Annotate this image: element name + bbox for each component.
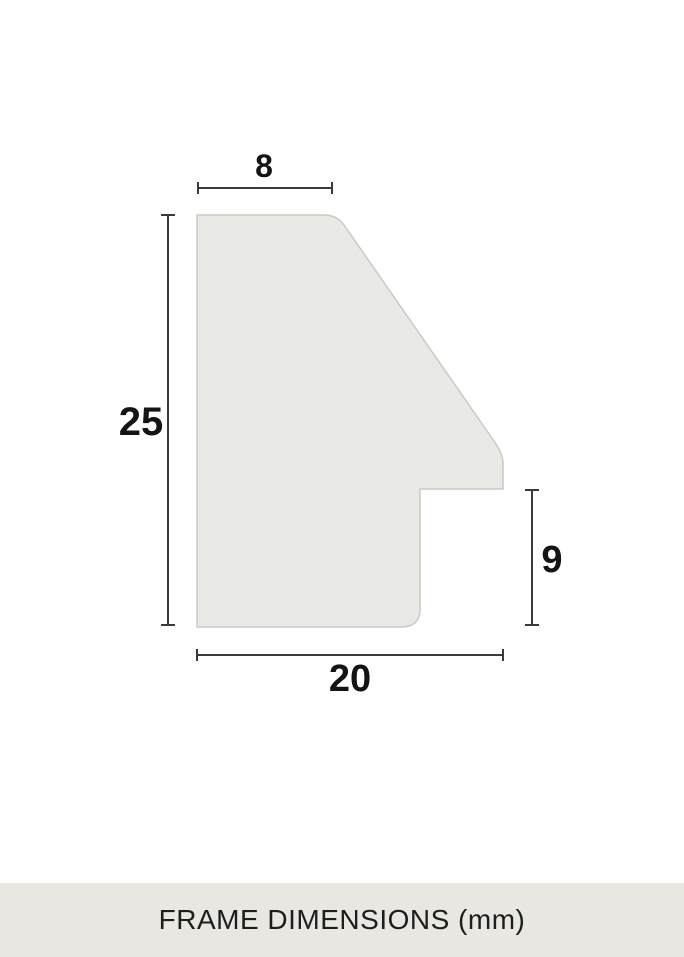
dimension-right-height: 9 [525,490,563,625]
frame-profile-shape [197,215,503,627]
dimension-bottom-width: 20 [197,649,503,700]
footer-band: FRAME DIMENSIONS (mm) [0,883,684,957]
frame-dimension-diagram: 8 25 9 20 [0,0,684,883]
dimension-label-right-height: 9 [541,539,562,581]
dimension-top-width: 8 [198,148,332,194]
dimension-label-bottom-width: 20 [329,658,371,700]
dimension-label-top-width: 8 [255,148,273,184]
footer-caption: FRAME DIMENSIONS (mm) [159,904,526,936]
dimension-label-left-height: 25 [119,400,164,444]
dimension-left-height: 25 [119,215,175,625]
page: 8 25 9 20 FRAME DIMENSIONS (mm) [0,0,684,957]
